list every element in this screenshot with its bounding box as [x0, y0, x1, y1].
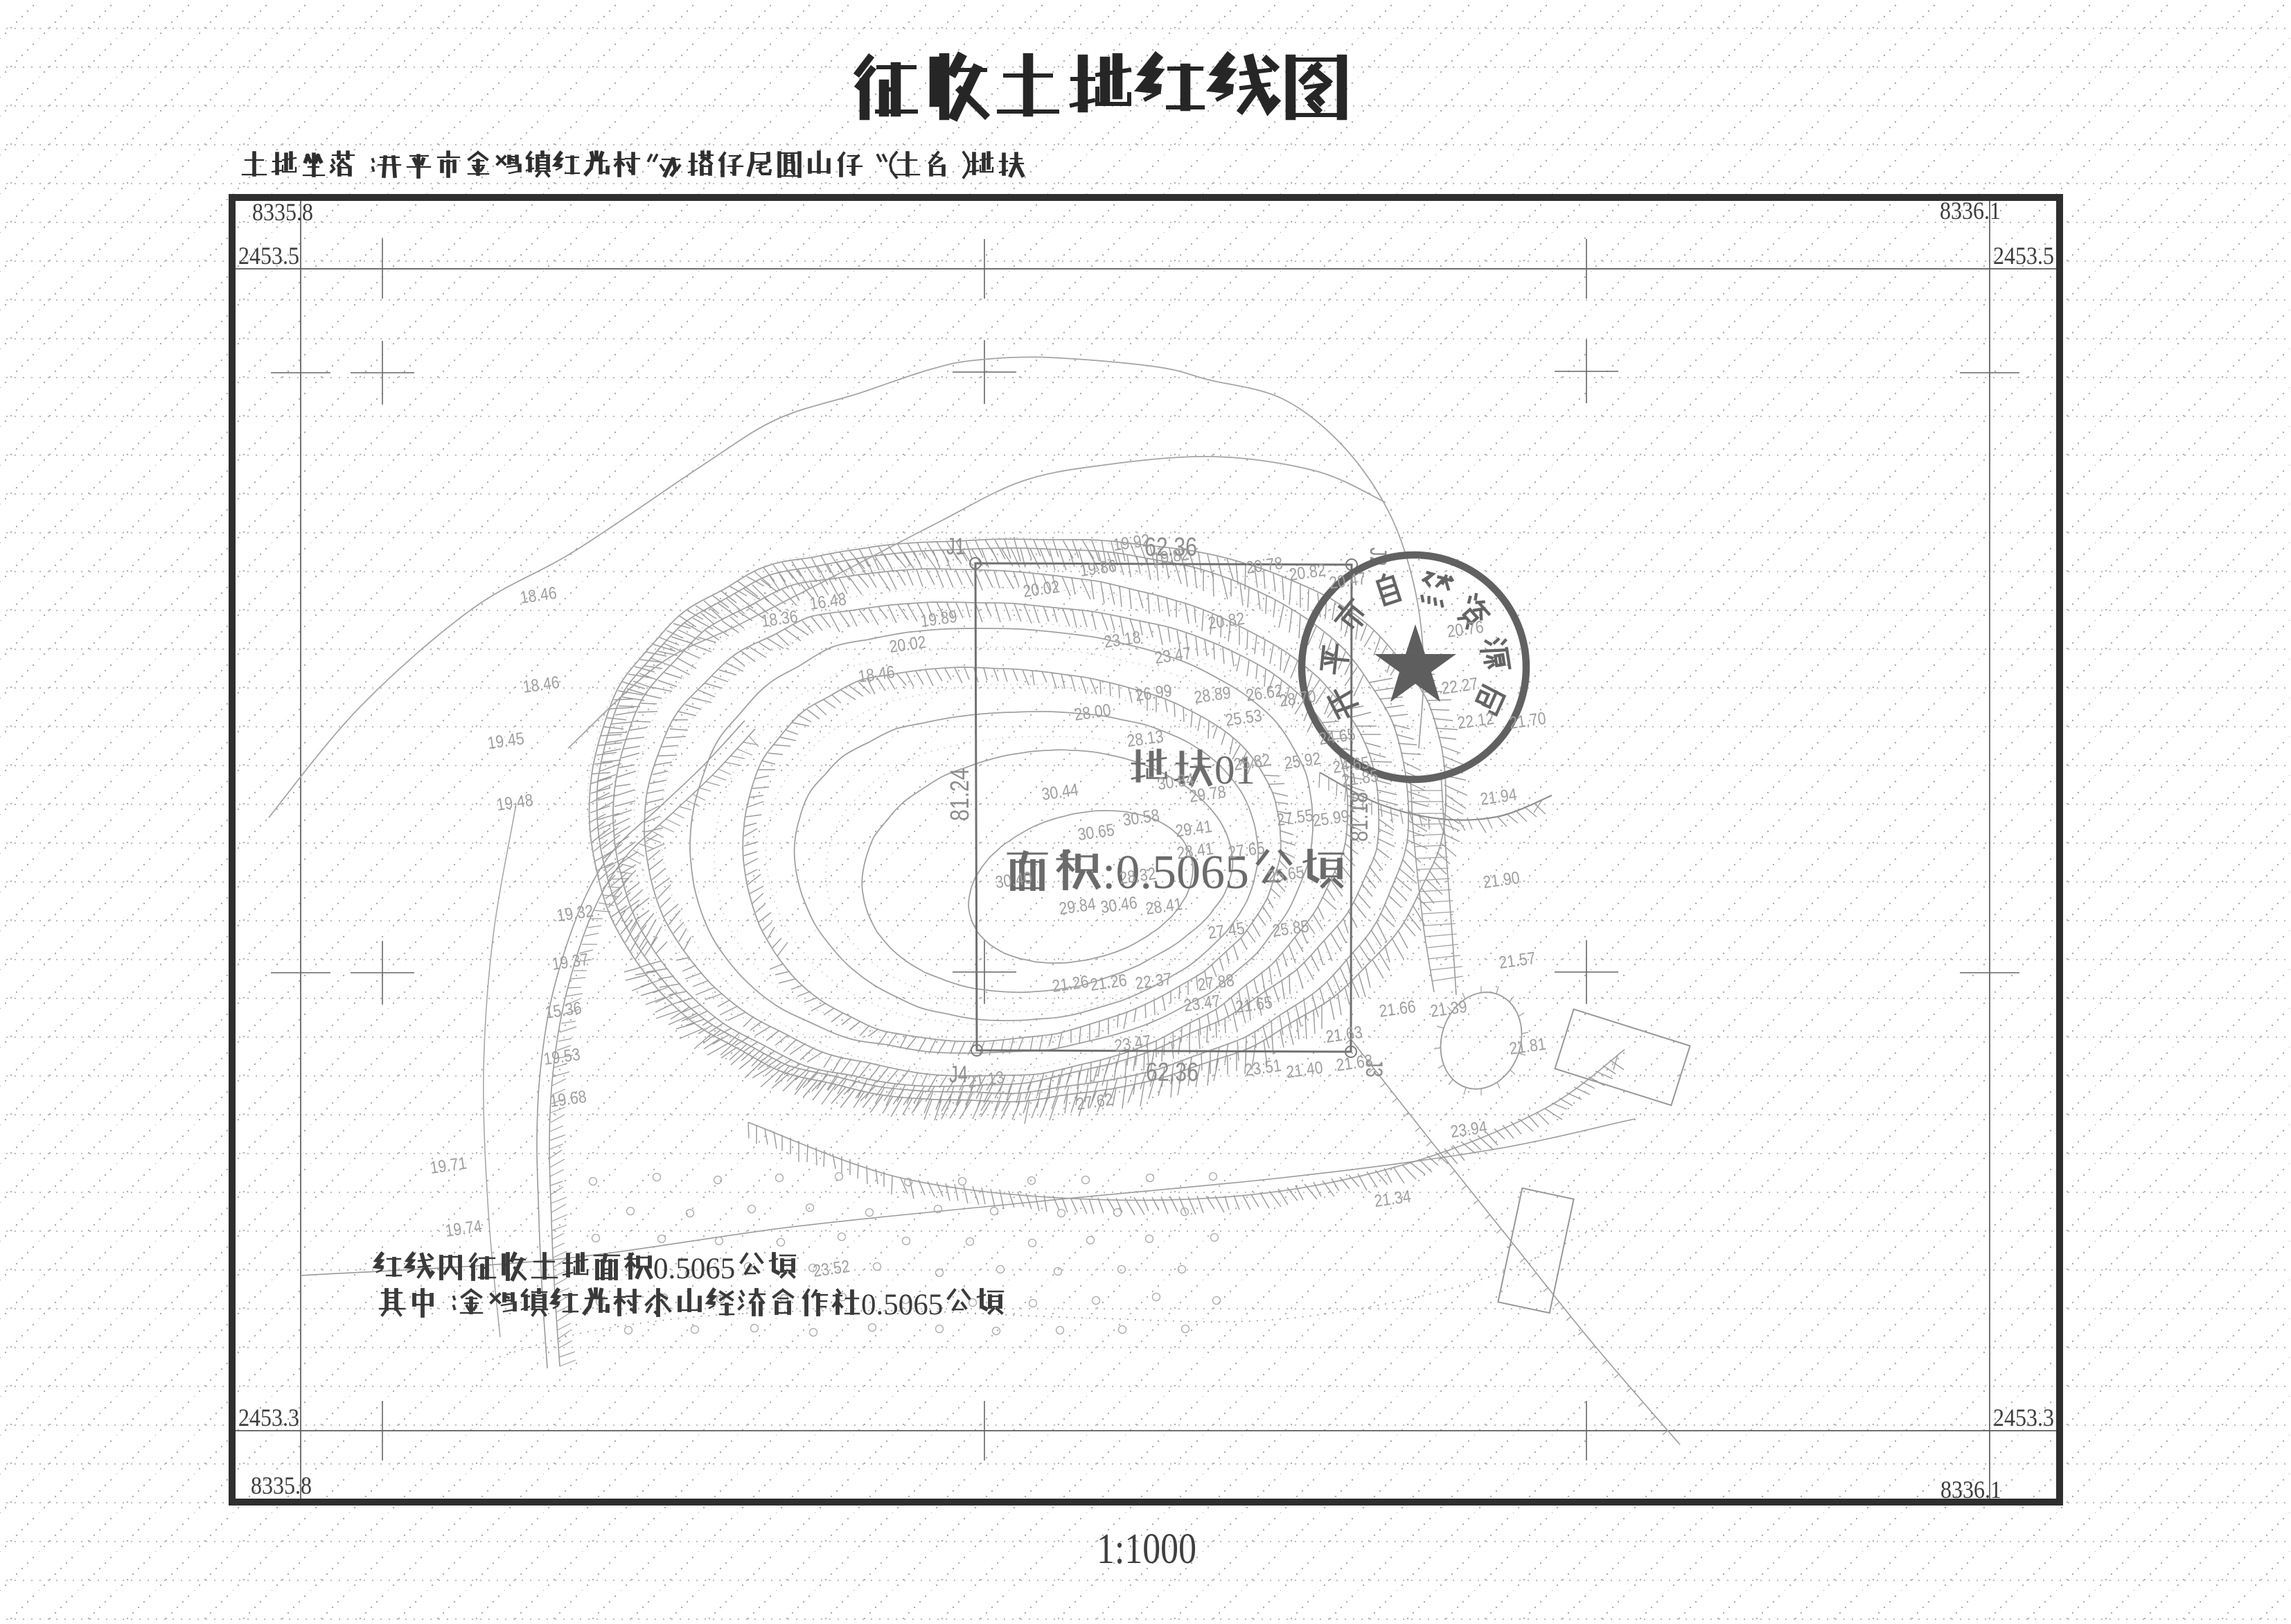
svg-text:8335.8: 8335.8 — [252, 198, 313, 226]
svg-text:J4: J4 — [949, 1061, 968, 1088]
svg-text:0.5065: 0.5065 — [861, 1289, 943, 1321]
svg-text:1:1000: 1:1000 — [1097, 1526, 1196, 1573]
svg-text:8336.1: 8336.1 — [1940, 197, 2001, 224]
svg-text:2453.3: 2453.3 — [238, 1404, 299, 1431]
svg-text:2453.5: 2453.5 — [1993, 242, 2054, 270]
svg-text:0.5065: 0.5065 — [653, 1253, 735, 1285]
svg-text:J1: J1 — [946, 533, 965, 560]
svg-text:2453.5: 2453.5 — [238, 242, 299, 270]
svg-text:2453.3: 2453.3 — [1993, 1404, 2054, 1431]
svg-text:8335.8: 8335.8 — [251, 1472, 312, 1499]
svg-text:62.36: 62.36 — [1146, 1058, 1198, 1087]
svg-text:81.24: 81.24 — [946, 768, 975, 821]
svg-text:8336.1: 8336.1 — [1940, 1476, 2001, 1503]
